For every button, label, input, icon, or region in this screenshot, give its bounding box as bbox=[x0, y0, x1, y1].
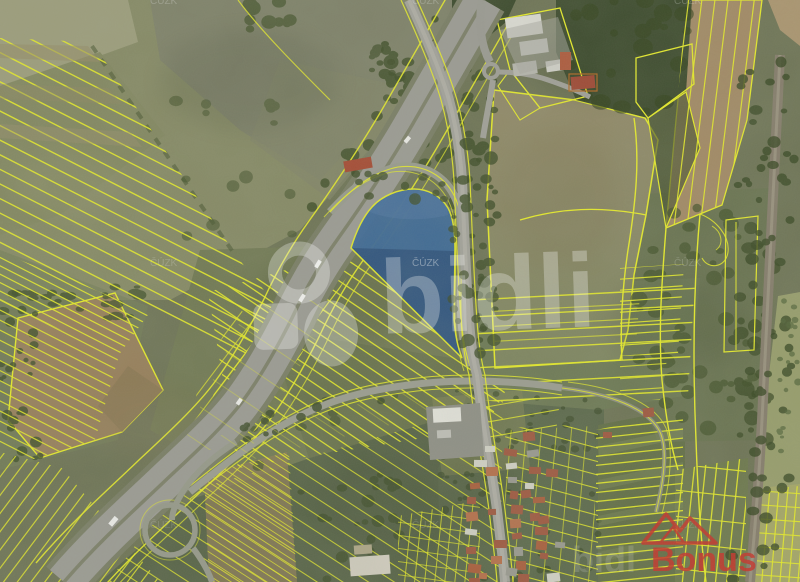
svg-text:Bonus: Bonus bbox=[651, 541, 757, 579]
svg-text:ČÚZK: ČÚZK bbox=[150, 0, 178, 7]
svg-text:ČÚZK: ČÚZK bbox=[150, 256, 178, 269]
svg-text:bidli: bidli bbox=[378, 232, 598, 356]
svg-text:ČÚZK: ČÚZK bbox=[674, 0, 702, 7]
svg-text:ČÚZK: ČÚZK bbox=[412, 0, 440, 7]
svg-text:ČÚZK: ČÚZK bbox=[412, 518, 440, 531]
svg-text:ČÚZK: ČÚZK bbox=[674, 256, 702, 269]
svg-text:bidl: bidl bbox=[572, 539, 636, 580]
svg-text:ČÚZK: ČÚZK bbox=[150, 518, 178, 531]
